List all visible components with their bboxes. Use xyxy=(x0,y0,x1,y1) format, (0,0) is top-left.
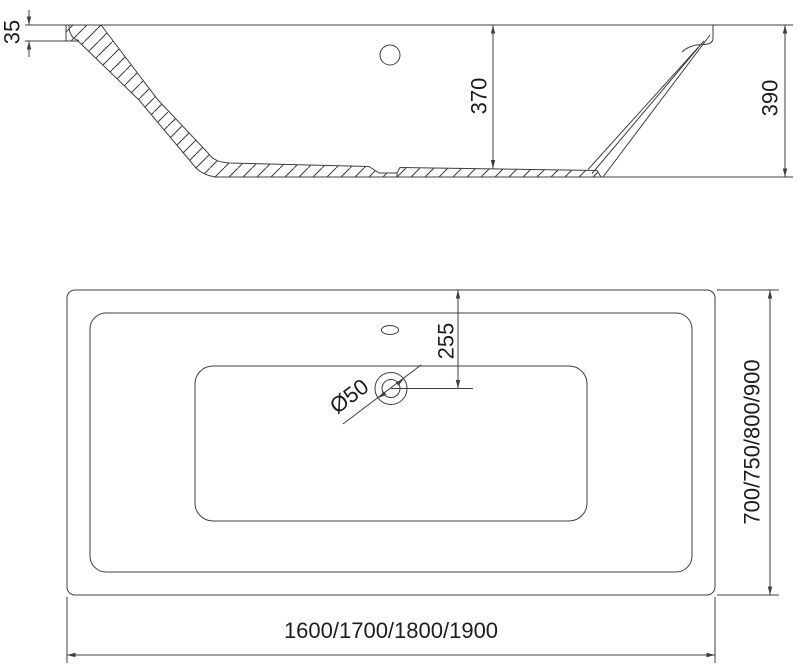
dim-label-length-variants: 1600/1700/1800/1900 xyxy=(284,618,498,643)
dim-label-drain-diameter: Ø50 xyxy=(325,374,373,419)
arrowhead xyxy=(27,17,31,26)
drawing-canvas: 35 370 390 255 Ø50 xyxy=(0,0,800,670)
arrowhead xyxy=(783,25,787,34)
arrowhead xyxy=(27,41,31,50)
dim-label-rim-thickness: 35 xyxy=(0,20,25,44)
arrowhead xyxy=(783,169,787,178)
arrowhead xyxy=(768,290,772,299)
arrowhead xyxy=(456,380,460,389)
right-wall-middle-line xyxy=(588,41,704,170)
bathtub-technical-drawing: 35 370 390 255 Ø50 xyxy=(0,0,800,670)
basin-floor-rect xyxy=(195,366,587,521)
arrowhead xyxy=(396,379,404,386)
arrowhead xyxy=(491,25,495,34)
section-cut-hatch xyxy=(66,25,601,177)
arrowhead xyxy=(768,587,772,596)
arrowhead xyxy=(456,290,460,299)
arrowhead xyxy=(67,653,76,657)
overflow-hole-plan xyxy=(382,326,399,335)
dim-label-width-variants: 700/750/800/900 xyxy=(740,359,765,524)
arrowhead xyxy=(491,160,495,169)
top-plan-view xyxy=(67,290,715,595)
dim-label-drain-offset: 255 xyxy=(434,323,459,360)
right-wall-outer-line xyxy=(603,35,710,177)
arrowhead xyxy=(707,653,716,657)
section-dimensions: 35 370 390 xyxy=(0,10,787,177)
outer-rim-rect xyxy=(67,290,715,595)
inner-rim-rect xyxy=(90,313,692,572)
side-section-view xyxy=(25,25,793,177)
plan-dimensions: 255 Ø50 1600/1700/1800/1900 700/750/800/… xyxy=(67,290,779,663)
right-wall-inner-line xyxy=(592,48,698,174)
overflow-hole-section xyxy=(380,45,400,65)
dim-label-inner-depth: 370 xyxy=(467,78,492,115)
dim-label-overall-height: 390 xyxy=(758,80,783,117)
